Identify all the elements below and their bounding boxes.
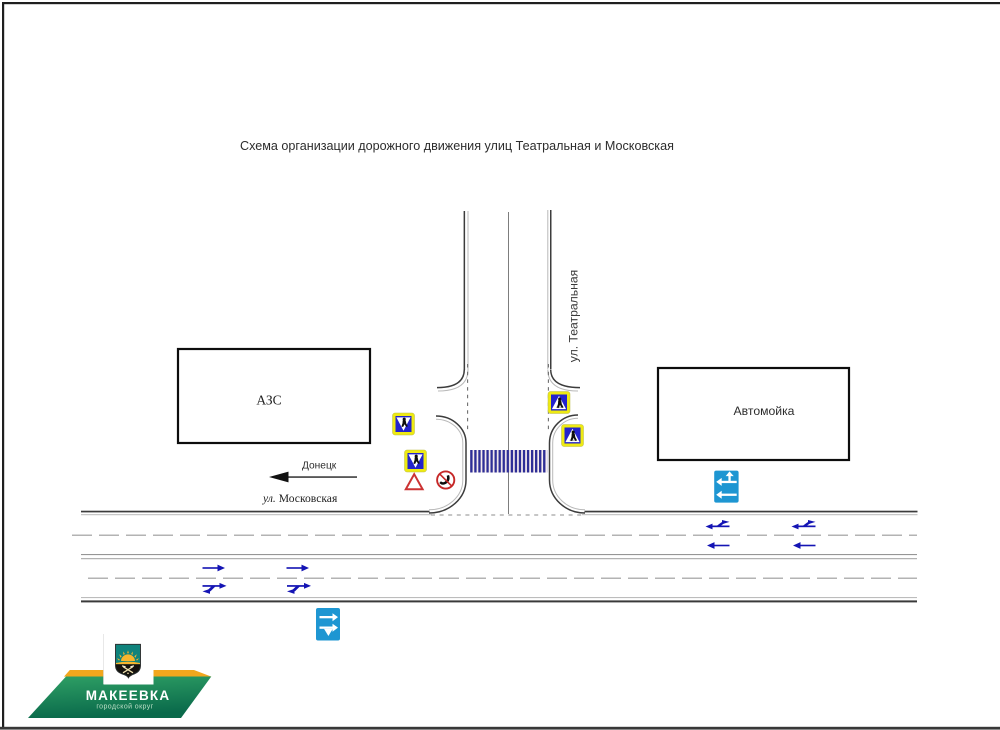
svg-text:ул. Московская: ул. Московская: [262, 492, 338, 505]
svg-text:ул. Театральная: ул. Театральная: [567, 270, 581, 362]
svg-text:Схема организации дорожного дв: Схема организации дорожного движения ули…: [240, 139, 674, 153]
svg-text:МАКЕЕВКА: МАКЕЕВКА: [86, 688, 171, 703]
svg-text:Донецк: Донецк: [302, 461, 337, 472]
svg-text:городской округ: городской округ: [96, 703, 153, 711]
svg-text:Автомойка: Автомойка: [734, 404, 795, 418]
svg-text:АЗС: АЗС: [256, 393, 281, 408]
